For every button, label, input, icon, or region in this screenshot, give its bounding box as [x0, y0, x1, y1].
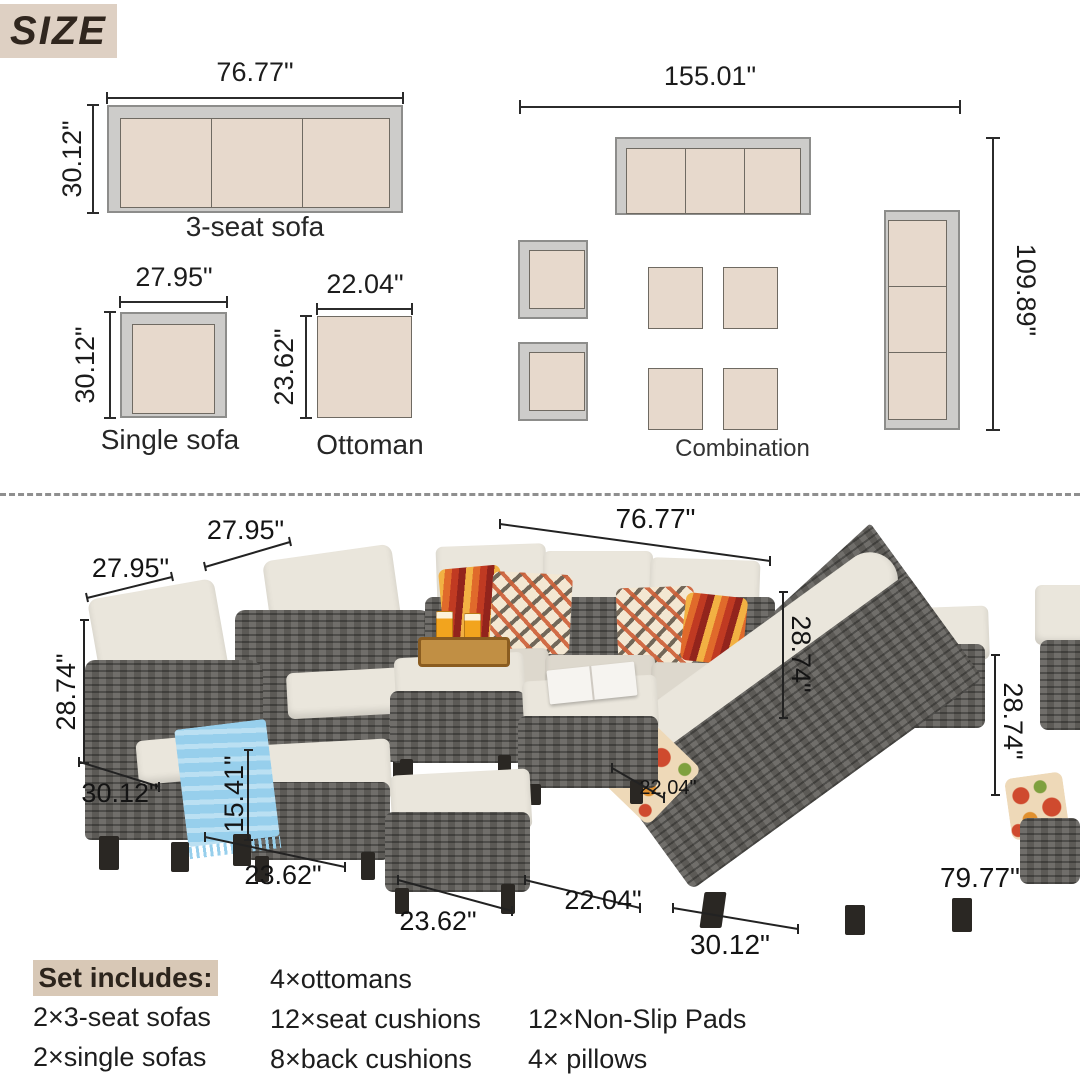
combo-vertical-cushion	[888, 220, 947, 287]
magazine-spine	[589, 666, 595, 700]
combo-vertical-cushion	[888, 286, 947, 353]
dim-label-sofa-width: 76.77"	[598, 504, 713, 534]
dim-line-combination-width	[520, 100, 960, 114]
set-includes-item: 2×3-seat sofas	[33, 1002, 211, 1033]
dim-label-sofa2-length: 79.77"	[925, 863, 1035, 893]
combo-ottoman-topview	[648, 368, 703, 430]
dim-label-ottoman-side2: 22.04"	[553, 886, 653, 914]
set-includes-heading: Set includes:	[38, 962, 212, 994]
leg	[501, 884, 515, 914]
leg	[361, 852, 375, 880]
leg	[99, 836, 119, 870]
dim-label-chair2-width: 27.95"	[198, 516, 293, 544]
set-includes-item: 8×back cushions	[270, 1044, 472, 1075]
set-includes-item: 12×seat cushions	[270, 1004, 481, 1035]
single-sofa-cushion	[132, 324, 215, 414]
dim-label-sofa-height: 28.74"	[787, 589, 815, 719]
dim-line-sofa3-depth	[87, 105, 99, 213]
dim-label-ottoman-height: 15.41"	[220, 739, 248, 849]
combo-ottoman-topview	[723, 368, 778, 430]
dim-line-ottoman-depth	[300, 316, 312, 418]
combo-single-topview	[518, 240, 588, 319]
dim-label-ottoman-width: 22.04"	[315, 270, 415, 298]
dim-line-sofa3-width	[107, 92, 403, 104]
set-includes-section: Set includes: 2×3-seat sofas 2×single so…	[0, 955, 1080, 1077]
dim-line-single-depth	[104, 312, 116, 418]
set-includes-heading-highlight: Set includes:	[33, 960, 218, 996]
leg	[699, 892, 726, 928]
combo-single-topview	[518, 342, 588, 421]
set-includes-item: 4×ottomans	[270, 964, 412, 995]
leg	[171, 842, 189, 872]
dim-label-ottoman-width: 23.62"	[388, 907, 488, 935]
dim-label-sofa3-width: 76.77"	[165, 58, 345, 86]
leg	[845, 905, 865, 935]
leg	[952, 898, 972, 932]
dim-label-chair1-width: 27.95"	[83, 554, 178, 582]
dim-label-sofa3-depth: 30.12"	[58, 104, 86, 214]
dim-line-ottoman-width	[317, 303, 412, 315]
dim-label-left-height: 28.74"	[52, 622, 80, 762]
diagram-label-combination: Combination	[665, 436, 820, 462]
serving-tray	[418, 637, 510, 667]
dim-label-sofa2-height: 28.74"	[999, 656, 1027, 786]
combo-single-cushion	[529, 352, 585, 411]
combo-vertical-sofa-topview	[884, 210, 960, 430]
set-includes-item: 4× pillows	[528, 1044, 647, 1075]
dim-label-ottoman-side: 22.04"	[636, 777, 700, 799]
ottoman-with-tray	[390, 655, 530, 780]
sofa3-cushion	[120, 118, 212, 208]
ottoman-topview	[317, 316, 412, 418]
dim-line-single-width	[120, 296, 227, 308]
dim-line-combination-depth	[986, 138, 1000, 430]
dim-label-combination-depth: 109.89"	[1011, 215, 1041, 365]
combo-sofa3-topview	[615, 137, 811, 215]
combo-vertical-cushion	[888, 352, 947, 420]
combo-sofa3-cushion	[685, 148, 745, 214]
combo-ottoman-topview	[723, 267, 778, 329]
ottoman-base	[390, 691, 525, 763]
diagram-section: SIZE 76.77" 30.12" 3-seat sofa 27.95" 30…	[0, 0, 1080, 494]
dim-label-ottoman-depth: 23.62"	[270, 315, 298, 419]
combo-ottoman-topview	[648, 267, 703, 329]
dim-label-ottoman-depth: 23.62"	[233, 861, 333, 889]
set-includes-item: 2×single sofas	[33, 1042, 206, 1073]
sofa3-cushion	[211, 118, 303, 208]
dim-label-single-width: 27.95"	[118, 263, 230, 291]
single-sofa-topview	[120, 312, 227, 418]
combo-sofa3-cushion	[626, 148, 686, 214]
sofa3-topview	[107, 105, 403, 213]
photo-section: 27.95" 27.95" 76.77" 28.74" 30.12" 15.41…	[0, 495, 1080, 955]
ottoman-front-right	[385, 772, 535, 922]
dim-label-chair-depth: 30.12"	[70, 779, 170, 807]
diagram-label-single: Single sofa	[90, 425, 250, 455]
sofa3-cushion	[302, 118, 390, 208]
combo-single-cushion	[529, 250, 585, 309]
dim-label-single-depth: 30.12"	[71, 313, 99, 417]
set-includes-item: 12×Non-Slip Pads	[528, 1004, 746, 1035]
ottoman-base	[385, 812, 530, 892]
combo-sofa3-cushion	[744, 148, 801, 214]
diagram-label-ottoman: Ottoman	[300, 430, 440, 460]
diagram-label-sofa3: 3-seat sofa	[135, 212, 375, 242]
dim-label-combination-width: 155.01"	[650, 62, 770, 90]
